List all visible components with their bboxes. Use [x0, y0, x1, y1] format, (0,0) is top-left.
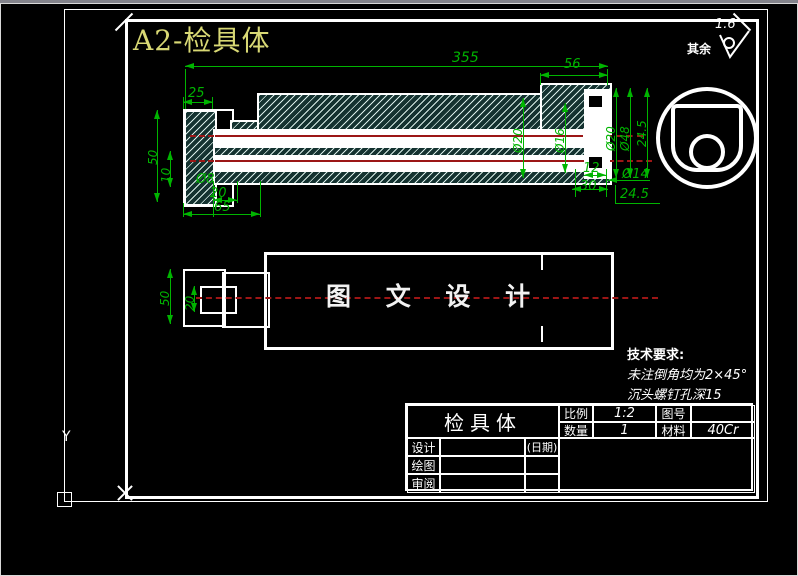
- centerline-lower: [215, 160, 606, 162]
- dim-65: 65: [214, 200, 231, 215]
- bore-slot-upper: [213, 129, 589, 148]
- review-label: 审阅: [411, 475, 435, 492]
- draft-name-cell: [440, 456, 525, 474]
- notes-cell: [559, 438, 755, 493]
- drawing-title: A2-检具体: [133, 19, 271, 59]
- design-label: 设计: [411, 439, 435, 456]
- draft-date-cell: [525, 456, 559, 474]
- tech-req-line-2: 沉头螺钉孔深15: [627, 384, 722, 403]
- scale-label-cell: 比例: [559, 405, 593, 422]
- date-label-cell: (日期): [525, 438, 559, 456]
- bore-slot-lower: [213, 155, 612, 172]
- dim-dia20b: Ø20: [604, 126, 618, 151]
- dim-plan20: 20: [183, 296, 197, 311]
- plan-step-top: [541, 254, 543, 270]
- qty-label: 数量: [564, 422, 588, 438]
- scale-value: 1:2: [614, 406, 635, 421]
- scale-value-cell: 1:2: [593, 405, 656, 422]
- plan-step-bottom: [541, 326, 543, 342]
- ucs-y-label: Y: [62, 429, 71, 445]
- dim-dia20a: Ø20: [511, 128, 525, 153]
- drawing-no-label: 图号: [661, 405, 685, 422]
- title-block: 检具体 比例 1:2 图号 数量 1 材料 40Cr 设计 (日期) 绘图 审阅: [405, 403, 753, 491]
- end-view-hole: [689, 134, 725, 170]
- material-value: 40Cr: [708, 423, 739, 438]
- qty-label-cell: 数量: [559, 422, 593, 438]
- dim-dia8: Ø8: [196, 172, 215, 187]
- plan-arm-left: [222, 272, 270, 328]
- dim-plan50: 50: [158, 291, 172, 306]
- dim-56: 56: [564, 57, 581, 72]
- material-value-cell: 40Cr: [691, 422, 755, 438]
- dim-dia48: Ø48: [618, 126, 632, 151]
- dim-30: 30: [580, 179, 597, 194]
- draft-label-cell: 绘图: [407, 456, 440, 474]
- tech-req-heading: 技术要求:: [627, 344, 684, 363]
- dim-dia16: Ø16: [553, 128, 567, 153]
- ext-line: [615, 185, 616, 203]
- roughness-icon: [716, 29, 752, 61]
- dim-25: 25: [188, 86, 205, 101]
- dim-line-245h: [615, 203, 660, 204]
- qty-value-cell: 1: [593, 422, 656, 438]
- watermark-text: 图 文 设 计: [326, 277, 543, 313]
- design-name-cell: [440, 438, 525, 456]
- dim-dia14: Ø14: [622, 167, 649, 182]
- review-date-cell: [525, 474, 559, 493]
- drawing-no-value-cell: [691, 405, 755, 422]
- ext-line: [237, 181, 238, 203]
- date-label: (日期): [527, 439, 558, 455]
- ext-line: [575, 169, 576, 197]
- dim-overall: 355: [452, 50, 479, 66]
- dim-line-overall: [185, 66, 608, 67]
- dim-12: 12: [583, 161, 600, 176]
- review-name-cell: [440, 474, 525, 493]
- qty-value: 1: [620, 423, 628, 438]
- part-name-cell: 检具体: [407, 405, 559, 438]
- material-label-cell: 材料: [656, 422, 691, 438]
- centerline-upper: [215, 135, 583, 137]
- scale-label: 比例: [564, 405, 588, 422]
- dim-245h: 24.5: [620, 187, 649, 202]
- tech-req-line-1: 未注倒角均为2×45°: [627, 364, 747, 383]
- ucs-origin-box: [57, 492, 72, 507]
- design-label-cell: 设计: [407, 438, 440, 456]
- dim-line-56: [540, 75, 608, 76]
- draft-label: 绘图: [411, 457, 435, 474]
- dim-20: 20: [210, 186, 227, 201]
- dim-10: 10: [159, 168, 173, 183]
- drawing-no-label-cell: 图号: [656, 405, 691, 422]
- part-name: 检具体: [444, 407, 522, 436]
- ext-line: [606, 169, 607, 197]
- centerline-lower-ext-l: [190, 160, 214, 162]
- ext-line: [260, 181, 261, 217]
- cad-drawing-viewport: A2-检具体 1.6 其余: [0, 0, 798, 576]
- review-label-cell: 审阅: [407, 474, 440, 493]
- dim-50: 50: [146, 150, 160, 165]
- screw-notch-top: [589, 96, 602, 107]
- centerline-upper-ext-l: [190, 135, 214, 137]
- material-label: 材料: [661, 422, 685, 438]
- dim-245v: 24.5: [635, 120, 649, 147]
- roughness-scope-label: 其余: [687, 40, 711, 57]
